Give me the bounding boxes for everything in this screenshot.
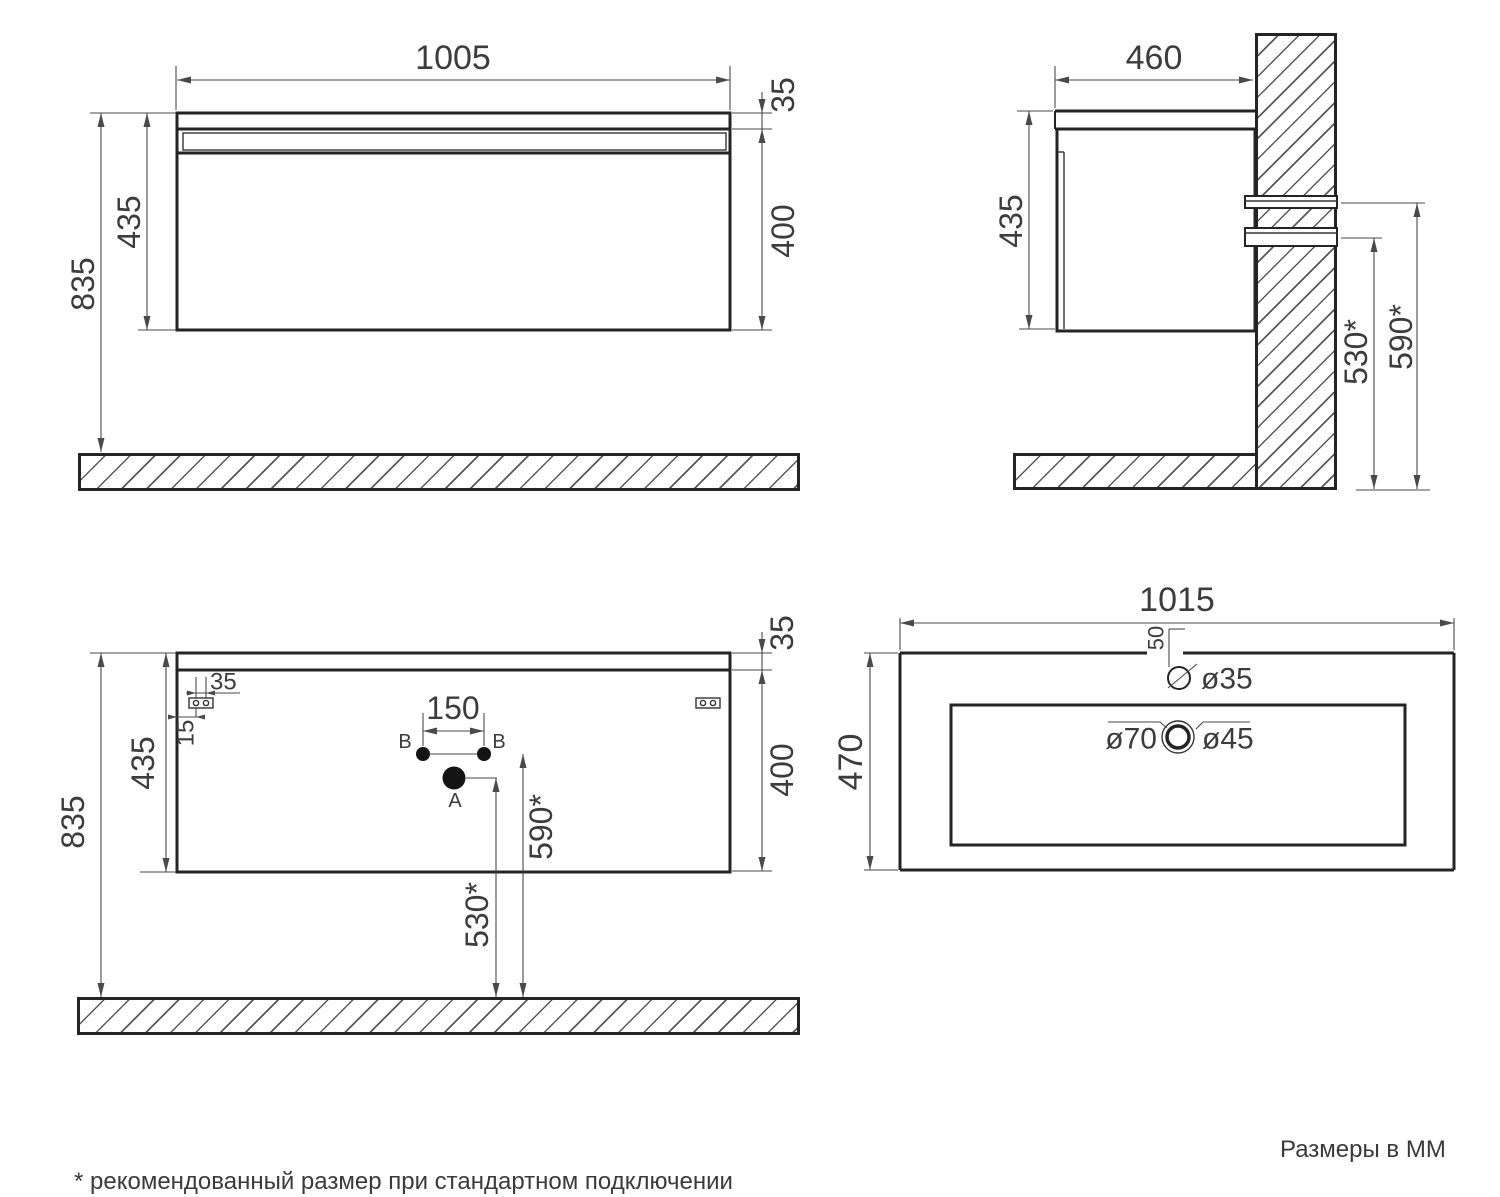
front-cabinet-outline [177,113,730,330]
side-cabinet-outline [1057,129,1255,331]
rear-label-b-right: B [492,731,505,753]
rear-under-top-dimension: 400 [764,743,800,796]
rear-bracket-right [696,698,720,708]
top-drain-outer-label: ø70 [1105,723,1157,756]
footnotes: * рекомендованный размер при стандартном… [74,1094,733,1197]
rear-view: 35 15 B B A 150 590* [55,615,800,997]
rear-bracket-spacing-dimension: 35 [210,669,237,696]
rear-supply-hole-left [416,747,430,761]
rear-supply-spacing-dimension: 150 [426,690,479,726]
side-supply-height-dimension: 590* [1383,304,1419,370]
side-view: 460 435 530* 590* [993,39,1430,490]
top-drain-inner-circle [1167,726,1189,748]
rear-top-thickness-dimension: 35 [764,615,800,651]
front-handle-recess [183,133,726,150]
front-top-thickness-dimension: 35 [765,77,801,113]
front-under-top-dimension: 400 [765,204,801,257]
front-cabinet-height-dimension: 435 [111,195,147,248]
top-faucet-diameter-label: ø35 [1201,663,1253,696]
top-depth-dimension: 470 [832,734,870,791]
rear-bracket-left [189,698,213,708]
top-view: ø35 50 ø70 ø45 1015 470 [832,581,1454,870]
side-cabinet-height-dimension: 435 [993,194,1029,247]
side-drain-height-dimension: 530* [1338,319,1374,385]
rear-bracket-offset-dimension: 15 [173,720,200,747]
top-drain-inner-label: ø45 [1202,723,1254,756]
rear-cabinet-height-dimension: 435 [125,736,161,789]
side-supply-pipe [1245,196,1337,208]
top-width-dimension: 1015 [1139,581,1215,619]
front-view: 1005 35 400 435 835 [65,39,801,452]
rear-supply-height-dimension: 590* [523,794,559,860]
top-faucet-offset-dimension: 50 [1144,626,1169,650]
rear-drain-hole [443,767,466,790]
technical-drawing: 1005 35 400 435 835 [0,0,1500,1197]
footnote-asterisk: * рекомендованный размер при стандартном… [74,1164,733,1197]
rear-label-b-left: B [398,731,411,753]
side-depth-dimension: 460 [1126,39,1183,77]
rear-drain-height-dimension: 530* [459,882,495,948]
rear-cabinet-outline [177,653,730,872]
front-width-dimension: 1005 [415,39,491,77]
side-drain-pipe [1245,228,1337,246]
rear-supply-hole-right [477,747,491,761]
rear-mount-height-dimension: 835 [55,795,91,848]
rear-label-a: A [448,790,462,812]
drawing-linework: 1005 35 400 435 835 [0,0,1500,1197]
front-mount-height-dimension: 835 [65,257,101,310]
units-note: Размеры в ММ [1280,1136,1446,1164]
